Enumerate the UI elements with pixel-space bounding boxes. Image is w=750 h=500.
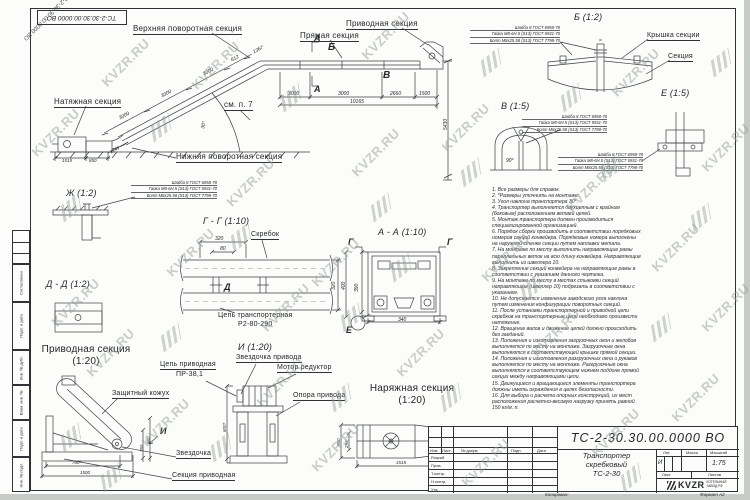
title-detail-zh: Ж (1:2) bbox=[66, 188, 97, 198]
title-tension-section-view-l2: (1:20) bbox=[362, 395, 462, 406]
dim-2660: 2660 bbox=[390, 91, 401, 97]
form-strip-label: Согласовано bbox=[19, 271, 24, 295]
dim-i-600: 600* bbox=[222, 423, 227, 432]
dim-height-5430: 5430 bbox=[443, 119, 449, 130]
title-detail-e: Е (1:5) bbox=[661, 88, 689, 98]
drawing-sheet: { "watermark": { "text": "KVZR.RU" }, "c… bbox=[0, 0, 750, 500]
label-section-cover: Крышка секции bbox=[647, 32, 700, 41]
dim-drive-780: 780* bbox=[72, 460, 81, 465]
form-strip-inv-podl: Инв. № подл. bbox=[12, 457, 30, 492]
tb-doc-number: ТС-2-30.30.00.0000 ВО bbox=[557, 427, 739, 449]
title-drive-section-view-l1: Приводная секция bbox=[36, 344, 136, 355]
dim-incline-3000-c: 3000 bbox=[118, 111, 131, 122]
label-see-note-7: см. п. 7 bbox=[224, 100, 253, 111]
label-lower-turn-section: Нижняя поворотная секция bbox=[176, 152, 282, 163]
label-drive-chain-l2: ПР-38,1 bbox=[176, 371, 203, 378]
form-strip-label: Подп. и дата bbox=[19, 314, 24, 338]
label-drive-sprocket: Звездочка привода bbox=[236, 354, 302, 363]
dim-3000-b: 3000 bbox=[338, 91, 349, 97]
form-strip-podp-data-1: Подп. и дата bbox=[12, 302, 30, 350]
tb-sheets-label: Листов bbox=[708, 472, 721, 477]
dim-v-90deg: 90° bbox=[506, 158, 514, 164]
title-block: Изм Лист № докум. Подп. Дата Разраб. Про… bbox=[428, 426, 738, 492]
label-drive-section-name: Секция приводная bbox=[172, 472, 235, 481]
title-detail-aa: А - А (1:10) bbox=[378, 227, 426, 237]
form-strip-label: Инв. № подл. bbox=[19, 462, 24, 487]
dim-drive-1500: 1500 bbox=[80, 470, 90, 475]
company-logo: KVZR КОТЕЛЬНЫЙ ЗАВОД РФ bbox=[667, 480, 726, 490]
label-straight-section: Прямая секция bbox=[300, 31, 359, 42]
dim-tension-295: 295 bbox=[344, 440, 349, 448]
gost-note-zh: Шайба 8 ГОСТ 6958-78 Гайка М8-6Н.5 (S13)… bbox=[131, 180, 217, 199]
tb-col-list: Лист bbox=[442, 448, 451, 453]
gost-note-b: Шайба 8 ГОСТ 6958-78 Гайка М8-6Н.5 (S13)… bbox=[470, 25, 560, 44]
logo-sub-l2: ЗАВОД РФ bbox=[707, 484, 723, 488]
logo-subtext: КОТЕЛЬНЫЙ ЗАВОД РФ bbox=[707, 481, 727, 488]
note-item: 7. На монтаже по месту выполнить направл… bbox=[492, 247, 642, 265]
tb-product-name: Транспортер скребковый ТС-2-30 bbox=[557, 451, 656, 478]
dim-1515-ground: 1515 bbox=[62, 158, 72, 163]
tb-col-podp: Подп. bbox=[511, 448, 522, 453]
form-strip-label: Подп. и дата bbox=[19, 427, 24, 451]
section-mark-a-top: А bbox=[314, 33, 321, 43]
dim-tension-1515: 1515 bbox=[396, 460, 406, 465]
dim-aa-390: 390 bbox=[354, 284, 360, 292]
tb-row-tkontr: Т.контр. bbox=[431, 471, 446, 476]
dim-gg-320-top: 320 bbox=[215, 236, 223, 242]
dim-1500: 1500 bbox=[419, 91, 430, 97]
form-strip-vzam-inv: Взам. инв. № bbox=[12, 385, 30, 420]
detail-mark-e: Е bbox=[346, 325, 352, 335]
dim-850: 850 bbox=[89, 158, 97, 163]
label-protective-cover: Защитный кожух bbox=[112, 390, 169, 399]
label-drive-support: Опора привода bbox=[293, 392, 345, 401]
note-item: 16. Для выбора и расчета опорных констру… bbox=[492, 393, 642, 411]
dim-angle-30: 30° bbox=[200, 121, 208, 130]
gost-line-bolt: Болт М8х25.58 (S13) ГОСТ 7798-70 bbox=[522, 127, 607, 133]
note-item: 4. Транспортер выполняется двухцепным с … bbox=[492, 205, 642, 217]
tb-col-mass: Масса bbox=[686, 450, 698, 455]
gost-note-v: Шайба 8 ГОСТ 6958-78 Гайка М8-6Н.5 (S13)… bbox=[522, 114, 607, 133]
label-conveyor-chain-line2: Р2-80-290 bbox=[238, 321, 273, 328]
dim-1249: 1249 bbox=[109, 145, 120, 154]
dim-incline-3000-a: 3000 bbox=[202, 67, 215, 78]
dim-drive-765: 765 bbox=[139, 444, 144, 452]
form-strip-podp-data-2: Подп. и дата bbox=[12, 420, 30, 457]
tb-name-l3: ТС-2-30 bbox=[593, 469, 621, 478]
title-detail-b: Б (1:2) bbox=[574, 12, 602, 22]
gost-line-bolt: Болт М8х25.58 (S13) ГОСТ 7798-70 bbox=[131, 193, 217, 199]
title-tension-section-view-l1: Наряжная секция bbox=[362, 383, 462, 394]
form-strip-inv-dubl: Инв. № дубл. bbox=[12, 350, 30, 385]
tb-row-razrab: Разраб. bbox=[431, 455, 445, 460]
label-conveyor-chain-line1: Цепь транспортерная bbox=[218, 312, 293, 319]
title-detail-v: В (1:5) bbox=[501, 101, 529, 111]
label-drive-section-callout: Приводная секция bbox=[346, 19, 418, 30]
note-item: 12. Вращение валов и движение цепей долж… bbox=[492, 326, 642, 338]
dim-3000-a: 3000 bbox=[288, 91, 299, 97]
form-strip-soglasovano: Согласовано bbox=[12, 264, 30, 302]
dim-total-10165: 10165 bbox=[350, 99, 364, 105]
view-mark-i: И bbox=[160, 426, 166, 436]
zone-mark-b: Б bbox=[328, 42, 335, 53]
dim-gg-400: 400 bbox=[341, 282, 347, 290]
note-item: 10. Не допускается изменение заводского … bbox=[492, 296, 642, 308]
margin-format-label: Формат А2 bbox=[700, 492, 725, 497]
label-sprocket: Звездочка bbox=[176, 450, 211, 459]
label-tension-section: Натяжная секция bbox=[54, 97, 121, 108]
dim-1367: 1367 bbox=[252, 45, 265, 56]
note-item: 8. Закрепление секций конвейера на напра… bbox=[492, 266, 642, 278]
label-motor-reducer: Мотор редуктор bbox=[277, 364, 332, 373]
section-mark-g-left: Г bbox=[348, 237, 354, 247]
top-stamp-number: ТС-2-30.30.00.0000 ВО bbox=[47, 14, 116, 21]
tb-row-prov: Пров. bbox=[431, 463, 442, 468]
tb-row-nkontr: Н.контр. bbox=[431, 479, 446, 484]
logo-text: KVZR bbox=[678, 480, 705, 490]
gost-line-bolt: Болт М8х25.58 (S13) ГОСТ 7798-70 bbox=[470, 38, 560, 44]
note-item: 11. После установки транспортерной и при… bbox=[492, 308, 642, 326]
gost-note-e: Шайба 8 ГОСТ 6958-78 Гайка М8-6Н.5 (S13)… bbox=[558, 152, 643, 171]
note-item: 13. Положения и изготовления загрузочных… bbox=[492, 338, 642, 356]
dim-gg-80: 80 bbox=[220, 246, 226, 252]
dim-aa-340: 340 bbox=[398, 317, 406, 323]
title-drive-section-view-l2: (1:20) bbox=[36, 356, 136, 367]
title-detail-dd: Д - Д (1:2) bbox=[46, 279, 90, 289]
form-strip-label: Инв. № дубл. bbox=[19, 355, 24, 380]
note-item: 6. Порядок сборки производить в соответс… bbox=[492, 229, 642, 247]
tb-col-izm: Изм bbox=[430, 448, 437, 453]
zone-mark-v: В bbox=[383, 70, 390, 81]
section-mark-g-right: Г bbox=[447, 237, 453, 247]
label-section: Секция bbox=[668, 53, 693, 62]
dim-drive-560: 560 bbox=[146, 436, 151, 444]
gost-line-bolt: Болт М8х25.58 (S13) ГОСТ 7798-70 bbox=[558, 165, 643, 171]
label-upper-turn-section: Верхняя поворотная секция bbox=[133, 24, 242, 35]
tb-col-data: Дата bbox=[537, 448, 546, 453]
tb-name-l2: скребковый bbox=[586, 460, 627, 469]
note-item: 9. На монтаже по месту в местах стыковки… bbox=[492, 278, 642, 296]
note-item: 15. Движущиеся и вращающиеся элементы тр… bbox=[492, 381, 642, 393]
tb-lit-value: И bbox=[658, 460, 662, 466]
technical-notes: 1. Все размеры для справок.2. *Размеры у… bbox=[492, 187, 642, 411]
logo-bars-icon bbox=[667, 481, 676, 490]
label-drive-chain-l1: Цепь приводная bbox=[160, 361, 216, 370]
form-strip-grid bbox=[12, 230, 30, 264]
label-scraper: Скребок bbox=[251, 231, 279, 240]
dim-tension-560: 560 bbox=[336, 438, 341, 446]
note-item: 5. Монтаж транспортера должен производит… bbox=[492, 217, 642, 229]
note-item: 14. Положения и изготовления разгрузочны… bbox=[492, 356, 642, 380]
section-mark-a-bottom: А bbox=[314, 84, 321, 94]
tb-col-doc: № докум. bbox=[461, 448, 479, 453]
tb-row-utv: Утв. bbox=[431, 487, 439, 492]
tb-col-lit: Лит. bbox=[663, 450, 670, 455]
title-detail-gg: Г - Г (1:10) bbox=[203, 216, 249, 226]
tb-sheet-label: Лист bbox=[662, 472, 671, 477]
tb-name-l1: Транспортер bbox=[583, 451, 631, 460]
dim-612: 612 bbox=[230, 54, 240, 63]
tb-col-scale: Масштаб bbox=[710, 450, 727, 455]
form-strip-label: Взам. инв. № bbox=[19, 390, 24, 415]
section-mark-d: Д bbox=[224, 282, 231, 292]
title-view-i: И (1:20) bbox=[238, 342, 272, 352]
dim-gg-320-right: 320 bbox=[331, 282, 337, 290]
tb-scale-value: 1:75 bbox=[712, 460, 726, 467]
dim-incline-3000-b: 3000 bbox=[160, 89, 173, 100]
